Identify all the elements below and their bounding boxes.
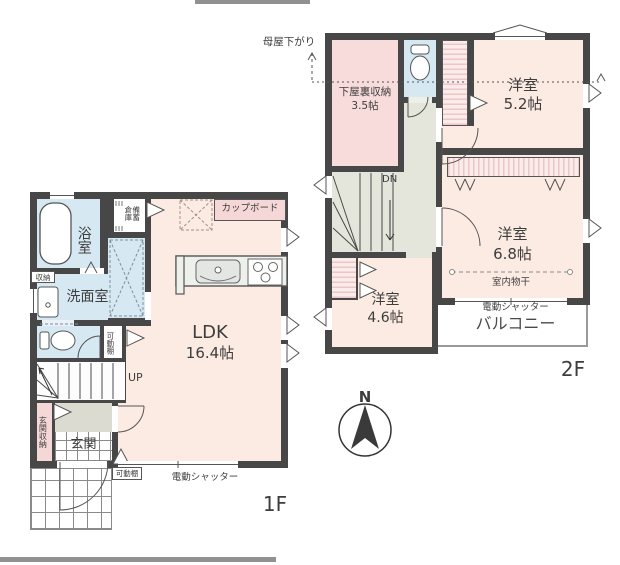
washroom-label: 洗面室 <box>45 289 130 307</box>
stock-storage-label: 備蓄倉庫 <box>124 203 140 223</box>
compass-north-label: N <box>355 388 375 407</box>
entrance-hall <box>55 403 112 432</box>
floorplan-canvas: 浴室 備蓄倉庫 洗面室 収納 可動棚 カップボード LDK 16.4帖 UP 玄… <box>0 0 620 565</box>
room68-name-label: 洋室 <box>442 225 583 244</box>
floor1-label: 1F <box>255 492 295 517</box>
entrance-label: 玄関 <box>55 437 112 453</box>
room46-size-label: 4.6帖 <box>338 310 433 328</box>
compass-icon <box>339 404 391 456</box>
attic-size-label: 3.5帖 <box>332 100 398 113</box>
ldk-name-label: LDK <box>160 322 260 345</box>
shutter-label-2f: 電動シャッター <box>458 302 573 314</box>
ldk-size-label: 16.4帖 <box>160 344 260 363</box>
room46-name-label: 洋室 <box>338 292 433 310</box>
dn-label: DN <box>382 174 397 187</box>
porch <box>30 468 112 530</box>
toilet-room-2f <box>404 40 436 97</box>
indoor-drying-label: 室内物干 <box>461 277 561 289</box>
door-gap-46 <box>406 252 432 258</box>
movable-shelf-label-1: 可動棚 <box>106 329 114 357</box>
ldk-room-3 <box>118 403 151 461</box>
room52-size-label: 5.2帖 <box>473 95 573 114</box>
floor2-label: 2F <box>553 357 593 382</box>
movable-shelf-label-2: 可動棚 <box>112 467 142 480</box>
up-label: UP <box>128 371 143 385</box>
west-room-52b <box>442 126 474 148</box>
storage-label: 収納 <box>31 271 55 283</box>
shutter-label-1f: 電動シャッター <box>145 472 265 484</box>
balcony-label: バルコニー <box>458 314 573 334</box>
room52-name-label: 洋室 <box>473 76 573 95</box>
hall-2f <box>404 103 436 252</box>
cupboard-label: カップボード <box>214 203 286 215</box>
bath-label: 浴室 <box>76 218 91 262</box>
entrance-storage-label: 玄関収納 <box>38 407 46 457</box>
moya-sagari-label: 母屋下がり <box>258 36 320 49</box>
toilet-room-1f <box>37 326 100 358</box>
closet-68 <box>447 157 580 177</box>
room68-size-label: 6.8帖 <box>442 245 583 264</box>
closet-52 <box>442 40 468 126</box>
crop-border-top <box>195 0 310 4</box>
attic-name-label: 下屋裏収納 <box>332 86 398 99</box>
stairs-1f <box>37 362 125 400</box>
crop-border-bottom <box>0 557 276 562</box>
